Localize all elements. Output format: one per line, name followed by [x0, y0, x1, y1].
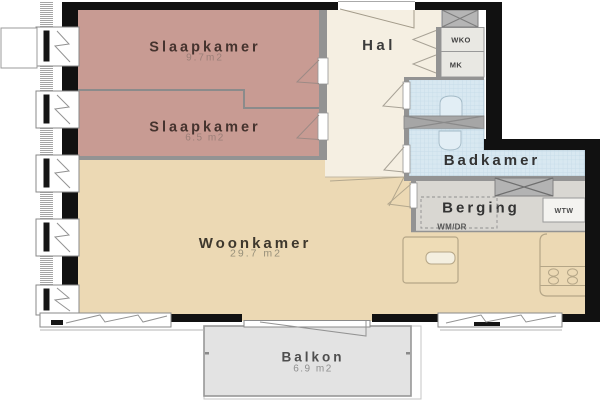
svg-text:9.7m2: 9.7m2 [186, 53, 224, 64]
svg-text:Berging: Berging [442, 200, 520, 217]
svg-text:6.9 m2: 6.9 m2 [293, 364, 333, 375]
svg-text:WKO: WKO [451, 36, 471, 45]
svg-text:WM/DR: WM/DR [437, 223, 467, 232]
svg-text:Hal: Hal [362, 37, 396, 54]
svg-text:Badkamer: Badkamer [444, 152, 541, 169]
svg-text:Balkon: Balkon [281, 350, 344, 365]
svg-text:WTW: WTW [555, 208, 574, 215]
svg-text:6.5 m2: 6.5 m2 [185, 133, 225, 144]
svg-text:29.7 m2: 29.7 m2 [230, 248, 282, 260]
svg-text:MK: MK [450, 61, 463, 70]
